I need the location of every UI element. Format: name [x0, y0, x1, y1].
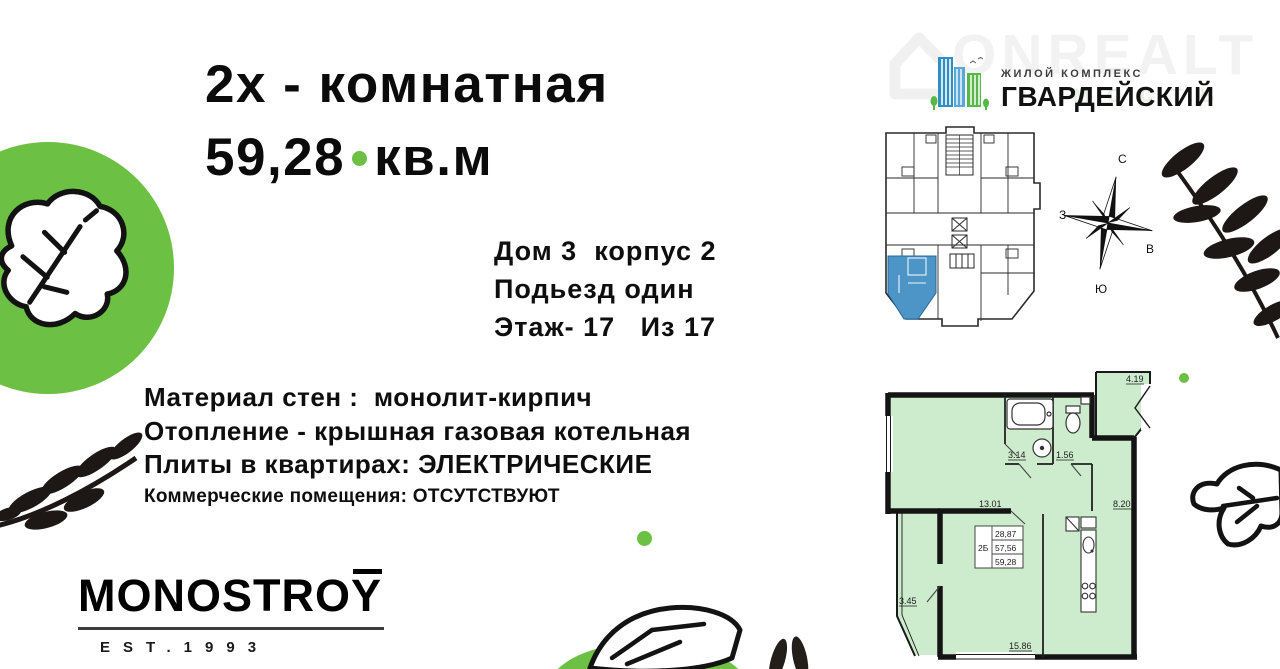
svg-text:В: В: [1146, 242, 1154, 256]
feature-stoves: Плиты в квартирах: ЭЛЕКТРИЧЕСКИЕ: [144, 448, 691, 482]
green-dot-bottom: [637, 531, 652, 546]
buildings-icon: [930, 49, 992, 115]
monstera-leaf-icon: [0, 172, 159, 358]
developer-logo: MONOSTROY EST.1993: [78, 570, 390, 656]
green-dot-right: [1179, 373, 1189, 383]
building-floor-plan: [866, 123, 1054, 337]
green-dot-icon: [352, 151, 367, 166]
feature-heating: Отопление - крышная газовая котельная: [144, 415, 691, 449]
location-house: Дом 3 корпус 2: [494, 233, 717, 271]
apartment-floor-plan: 2Б 28,87 57,56 59,28 3.14 1.56 4.19 13.0…: [883, 368, 1167, 669]
svg-text:28,87: 28,87: [995, 529, 1017, 539]
svg-text:Ю: Ю: [1095, 282, 1107, 296]
complex-type-label: ЖИЛОЙ КОМПЛЕКС: [1001, 68, 1215, 80]
double-leaf-bottom-icon: [760, 630, 818, 669]
headline-rooms: 2х - комнатная: [205, 48, 609, 121]
svg-text:1.56: 1.56: [1056, 450, 1074, 460]
developer-established: EST.1993: [78, 639, 390, 656]
headline-area: 59,28кв.м: [205, 121, 609, 194]
svg-text:3.14: 3.14: [1008, 450, 1026, 460]
complex-name-label: ГВАРДЕЙСКИЙ: [1001, 81, 1215, 113]
svg-text:57,56: 57,56: [995, 543, 1017, 553]
developer-name: MONOSTROY: [78, 570, 390, 622]
svg-text:3.45: 3.45: [899, 596, 917, 606]
feature-commercial: Коммерческие помещения: ОТСУТСТВУЮТ: [144, 485, 691, 510]
location-block: Дом 3 корпус 2 Подьезд один Этаж- 17 Из …: [494, 233, 717, 346]
complex-logo: ЖИЛОЙ КОМПЛЕКС ГВАРДЕЙСКИЙ: [930, 49, 1215, 115]
location-floor: Этаж- 17 Из 17: [494, 309, 717, 347]
feature-walls: Материал стен : монолит-кирпич: [144, 381, 691, 415]
area-value: 59,28: [205, 128, 345, 187]
headline: 2х - комнатная 59,28кв.м: [205, 48, 609, 194]
area-table: 2Б 28,87 57,56 59,28: [975, 526, 1023, 568]
svg-text:59,28: 59,28: [995, 557, 1017, 567]
outlined-leaf-bottom-icon: [582, 596, 747, 669]
svg-text:4.19: 4.19: [1126, 374, 1144, 384]
developer-divider: [78, 627, 384, 630]
branch-leaves-left-icon: [0, 428, 149, 543]
listing-poster: ONREALT мость ЖИЛОЙ КОМПЛЕКС ГВА: [0, 0, 1280, 669]
svg-text:З: З: [1059, 208, 1066, 222]
compass-rose-icon: С З В Ю: [1058, 148, 1163, 298]
developer-name-last: Y: [351, 570, 382, 622]
features-block: Материал стен : монолит-кирпич Отопление…: [144, 381, 691, 509]
area-unit: кв.м: [374, 128, 493, 187]
svg-text:2Б: 2Б: [978, 543, 989, 553]
outlined-leaf-right-icon: [1185, 450, 1280, 565]
location-entrance: Подьезд один: [494, 271, 717, 309]
svg-text:15.86: 15.86: [1009, 641, 1032, 651]
svg-text:13.01: 13.01: [979, 499, 1002, 509]
svg-text:С: С: [1118, 152, 1127, 166]
branch-leaves-right-icon: [1145, 128, 1280, 353]
svg-text:8.20: 8.20: [1113, 499, 1131, 509]
developer-name-main: MONOSTRO: [78, 570, 351, 621]
